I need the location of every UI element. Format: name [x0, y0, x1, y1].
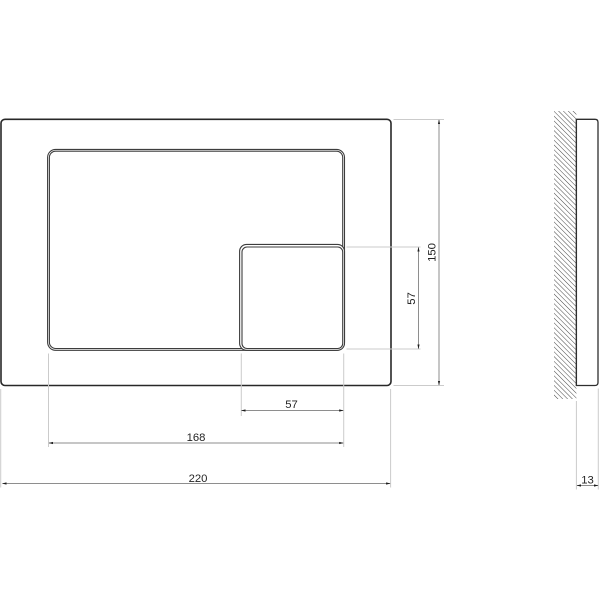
svg-text:220: 220 [189, 473, 208, 485]
svg-text:57: 57 [406, 292, 418, 305]
svg-text:57: 57 [285, 399, 298, 411]
svg-text:168: 168 [187, 432, 206, 444]
svg-text:13: 13 [581, 474, 594, 486]
svg-text:150: 150 [426, 243, 438, 262]
